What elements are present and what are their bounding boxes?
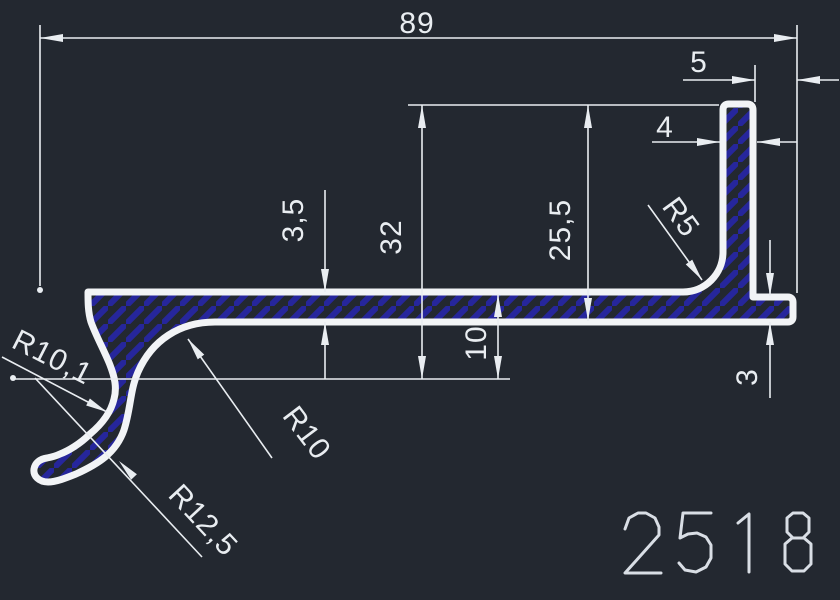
dim-lip-thickness: 3	[731, 368, 764, 386]
arrowhead	[697, 138, 720, 146]
arrowhead	[584, 105, 592, 128]
dimension-labels: 89 5 4 3,5 32 25,5 10 3 R5 R10 R10,1 R12…	[7, 7, 764, 563]
dim-hook-inner-radius: R10,1	[7, 324, 98, 392]
arrowhead	[774, 34, 797, 42]
dim-web-to-centerline: 10	[460, 325, 493, 360]
arrowhead	[686, 260, 702, 280]
arrowhead	[757, 138, 780, 146]
dim-hook-outer-radius: R12,5	[162, 478, 244, 563]
dim-inner-fillet-radius: R10	[276, 400, 337, 466]
part-number-digit	[679, 513, 711, 572]
arrowhead	[494, 356, 502, 379]
arrowhead	[188, 339, 204, 359]
arrowhead	[766, 273, 774, 296]
profile-outline	[34, 104, 793, 482]
dim-flange-thickness: 4	[656, 111, 674, 144]
part-number-digit	[785, 513, 811, 571]
arrowhead	[86, 398, 107, 412]
dim-web-thickness: 3,5	[277, 198, 310, 243]
arrowhead	[418, 356, 426, 379]
dim-flange-height: 25,5	[544, 199, 577, 261]
arrowhead	[732, 76, 755, 84]
part-number-digit	[738, 514, 749, 572]
arrowhead	[40, 34, 63, 42]
dim-overall-height: 32	[375, 219, 408, 254]
dim-overall-width: 89	[399, 7, 434, 40]
part-number-digit	[625, 513, 661, 573]
part-number	[625, 513, 811, 573]
extension-origin-dot	[10, 375, 16, 381]
dim-fillet-radius: R5	[655, 191, 705, 243]
extension-origin-dot	[37, 287, 43, 293]
cad-drawing-canvas: 89 5 4 3,5 32 25,5 10 3 R5 R10 R10,1 R12…	[0, 0, 840, 600]
arrowhead	[797, 76, 820, 84]
dim-lip-offset: 5	[690, 46, 708, 79]
arrowhead	[418, 105, 426, 128]
profile-drawing: 89 5 4 3,5 32 25,5 10 3 R5 R10 R10,1 R12…	[0, 0, 840, 600]
